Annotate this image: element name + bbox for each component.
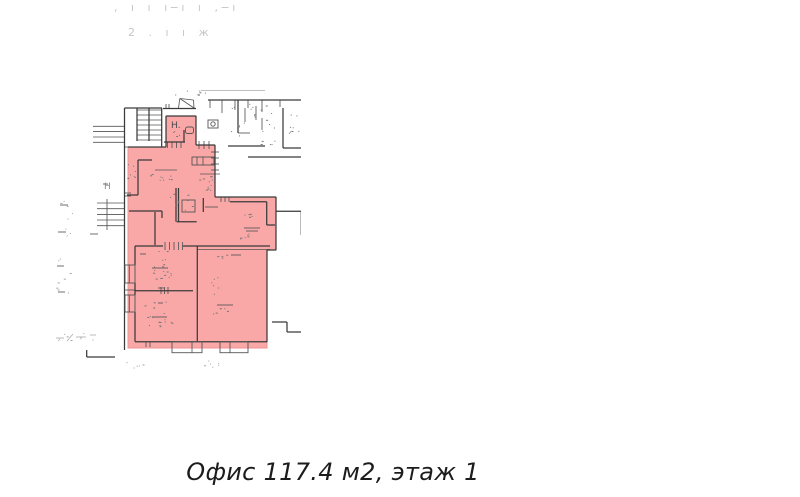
floor-plan-page: , ı ı ı−ı ı ,−ı 2 . ı ı ж Н.Н Офис 117.4… xyxy=(0,0,800,497)
floor-plan-drawing: Н.Н xyxy=(0,0,800,497)
plan-caption: Офис 117.4 м2, этаж 1 xyxy=(186,458,479,486)
svg-text:Н: Н xyxy=(104,182,111,192)
svg-text:Н.: Н. xyxy=(171,121,181,131)
